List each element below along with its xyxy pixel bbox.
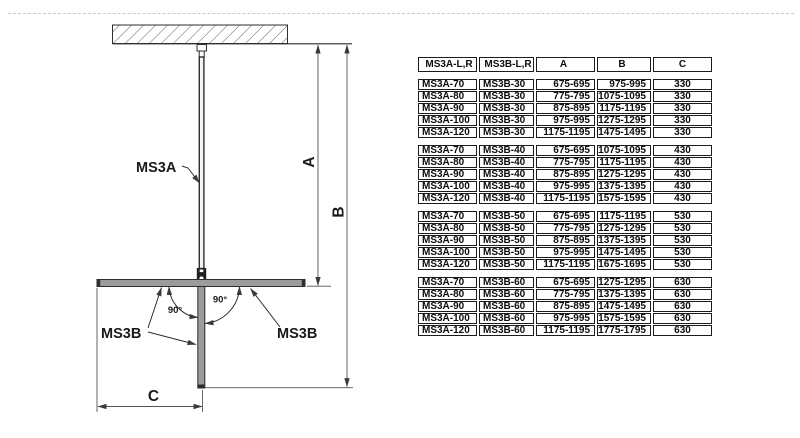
table-cell: MS3A-100 [418, 181, 477, 192]
angle-left-label: 90° [168, 305, 183, 316]
table-cell: 775-795 [536, 157, 595, 168]
table-cell: 1375-1395 [597, 235, 651, 246]
table-cell: 975-995 [536, 115, 595, 126]
table-cell: 875-895 [536, 301, 595, 312]
table-cell: 1175-1195 [536, 259, 595, 270]
table-cell: MS3A-90 [418, 103, 477, 114]
table-cell: 630 [653, 325, 712, 336]
table-cell: 1175-1195 [597, 211, 651, 222]
table-cell: 1275-1295 [597, 115, 651, 126]
table-cell: MS3B-50 [479, 247, 534, 258]
table-cell: MS3B-60 [479, 289, 534, 300]
table-cell: 1575-1595 [597, 193, 651, 204]
table-row: MS3A-70MS3B-40675-6951075-1095430 [418, 145, 712, 156]
table-cell: 1275-1295 [597, 169, 651, 180]
table-cell: 875-895 [536, 235, 595, 246]
table-cell: 675-695 [536, 211, 595, 222]
table-cell: 1175-1195 [536, 127, 595, 138]
table-cell: 975-995 [536, 313, 595, 324]
table-row: MS3A-90MS3B-60875-8951475-1495630 [418, 301, 712, 312]
table-cell: 1175-1195 [536, 325, 595, 336]
table-row: MS3A-90MS3B-50875-8951375-1395530 [418, 235, 712, 246]
column-header: MS3B-L,R [479, 57, 534, 72]
support-pole [199, 57, 204, 269]
table-group-2: MS3A-70MS3B-40675-6951075-1095430MS3A-80… [418, 145, 712, 204]
table-cell: MS3A-120 [418, 193, 477, 204]
table-cell: 775-795 [536, 91, 595, 102]
table-row: MS3A-120MS3B-501175-11951675-1695530 [418, 259, 712, 270]
table-cell: 1475-1495 [597, 127, 651, 138]
table-cell: 630 [653, 289, 712, 300]
table-cell: 1375-1395 [597, 289, 651, 300]
table-cell: 875-895 [536, 103, 595, 114]
table-cell: MS3B-60 [479, 313, 534, 324]
table-cell: MS3B-30 [479, 79, 534, 90]
table-cell: MS3A-100 [418, 247, 477, 258]
table-cell: 530 [653, 235, 712, 246]
table-cell: MS3A-90 [418, 301, 477, 312]
table-header-row: MS3A-L,RMS3B-L,RABC [418, 57, 712, 72]
table-cell: MS3B-40 [479, 193, 534, 204]
table-cell: MS3B-50 [479, 259, 534, 270]
panel-bar-vertical [198, 287, 205, 389]
table-row: MS3A-100MS3B-50975-9951475-1495530 [418, 247, 712, 258]
table-cell: 530 [653, 211, 712, 222]
table-cell: 1175-1195 [597, 157, 651, 168]
dim-b-label: B [331, 206, 348, 217]
table-cell: MS3B-30 [479, 91, 534, 102]
dim-c-label: C [148, 388, 159, 405]
table-cell: 875-895 [536, 169, 595, 180]
table-cell: 1575-1595 [597, 313, 651, 324]
table-cell: 1075-1095 [597, 145, 651, 156]
panel-label-ms3a: MS3A [136, 160, 177, 176]
table-row: MS3A-90MS3B-40875-8951275-1295430 [418, 169, 712, 180]
table-cell: MS3A-80 [418, 157, 477, 168]
table-row: MS3A-70MS3B-60675-6951275-1295630 [418, 277, 712, 288]
table-row: MS3A-80MS3B-40775-7951175-1195430 [418, 157, 712, 168]
table-row: MS3A-80MS3B-30775-7951075-1095330 [418, 91, 712, 102]
table-row: MS3A-80MS3B-50775-7951275-1295530 [418, 223, 712, 234]
table-row: MS3A-70MS3B-30675-695975-995330 [418, 79, 712, 90]
table-cell: MS3B-60 [479, 277, 534, 288]
table-cell: 775-795 [536, 223, 595, 234]
table-cell: 1475-1495 [597, 247, 651, 258]
table-cell: 1175-1195 [597, 103, 651, 114]
table-cell: 330 [653, 79, 712, 90]
table-group-3: MS3A-70MS3B-50675-6951175-1195530MS3A-80… [418, 211, 712, 270]
table-row: MS3A-100MS3B-60975-9951575-1595630 [418, 313, 712, 324]
table-cell: MS3B-60 [479, 301, 534, 312]
table-cell: 675-695 [536, 79, 595, 90]
panel-bar-horizontal [97, 280, 305, 287]
table-cell: 630 [653, 301, 712, 312]
table-cell: MS3B-40 [479, 145, 534, 156]
table-cell: MS3B-30 [479, 103, 534, 114]
ceiling-hatch [113, 25, 353, 44]
table-cell: MS3B-50 [479, 223, 534, 234]
table-cell: 530 [653, 223, 712, 234]
table-cell: 1275-1295 [597, 223, 651, 234]
table-cell: 430 [653, 193, 712, 204]
table-cell: 330 [653, 115, 712, 126]
table-cell: MS3B-50 [479, 211, 534, 222]
table-cell: MS3A-100 [418, 313, 477, 324]
table-group-1: MS3A-70MS3B-30675-695975-995330MS3A-80MS… [418, 79, 712, 138]
table-group-4: MS3A-70MS3B-60675-6951275-1295630MS3A-80… [418, 277, 712, 336]
column-header: A [536, 57, 595, 72]
table-cell: MS3A-70 [418, 145, 477, 156]
table-cell: MS3A-80 [418, 91, 477, 102]
table-cell: 1675-1695 [597, 259, 651, 270]
column-header: MS3A-L,R [418, 57, 477, 72]
table-cell: 1275-1295 [597, 277, 651, 288]
column-header: B [597, 57, 651, 72]
table-cell: 430 [653, 181, 712, 192]
table-cell: MS3A-100 [418, 115, 477, 126]
table-cell: 1175-1195 [536, 193, 595, 204]
table-cell: MS3B-50 [479, 235, 534, 246]
table-cell: 430 [653, 145, 712, 156]
table-cell: MS3A-80 [418, 223, 477, 234]
table-cell: 430 [653, 157, 712, 168]
table-cell: 775-795 [536, 289, 595, 300]
table-cell: 630 [653, 313, 712, 324]
table-cell: MS3A-120 [418, 259, 477, 270]
table-cell: 1475-1495 [597, 301, 651, 312]
table-row: MS3A-70MS3B-50675-6951175-1195530 [418, 211, 712, 222]
table-cell: MS3A-70 [418, 79, 477, 90]
dim-a-label: A [301, 156, 318, 167]
table-cell: MS3A-90 [418, 169, 477, 180]
table-cell: MS3A-90 [418, 235, 477, 246]
table-cell: 330 [653, 127, 712, 138]
table-cell: 530 [653, 259, 712, 270]
installation-diagram: A B C 90° 90° MS3A MS3B MS3B [0, 0, 420, 438]
table-cell: MS3A-120 [418, 325, 477, 336]
table-cell: 975-995 [597, 79, 651, 90]
table-cell: 530 [653, 247, 712, 258]
table-cell: 330 [653, 91, 712, 102]
panel-label-ms3b-left: MS3B [101, 326, 141, 342]
table-cell: MS3B-60 [479, 325, 534, 336]
column-header: C [653, 57, 712, 72]
table-cell: MS3A-70 [418, 277, 477, 288]
table-cell: 1075-1095 [597, 91, 651, 102]
table-row: MS3A-90MS3B-30875-8951175-1195330 [418, 103, 712, 114]
leader-lines [148, 166, 280, 345]
table-row: MS3A-120MS3B-301175-11951475-1495330 [418, 127, 712, 138]
table-row: MS3A-120MS3B-601175-11951775-1795630 [418, 325, 712, 336]
table-cell: 630 [653, 277, 712, 288]
table-row: MS3A-80MS3B-60775-7951375-1395630 [418, 289, 712, 300]
angle-right-label: 90° [213, 295, 228, 306]
table-cell: MS3B-40 [479, 157, 534, 168]
table-cell: MS3B-40 [479, 169, 534, 180]
spec-table: MS3A-L,RMS3B-L,RABCMS3A-70MS3B-30675-695… [418, 57, 712, 336]
table-cell: 1375-1395 [597, 181, 651, 192]
table-cell: 330 [653, 103, 712, 114]
table-cell: MS3B-40 [479, 181, 534, 192]
table-cell: MS3A-80 [418, 289, 477, 300]
table-row: MS3A-100MS3B-40975-9951375-1395430 [418, 181, 712, 192]
table-cell: 1775-1795 [597, 325, 651, 336]
table-cell: MS3B-30 [479, 127, 534, 138]
table-cell: 675-695 [536, 277, 595, 288]
table-cell: 975-995 [536, 247, 595, 258]
table-cell: MS3A-70 [418, 211, 477, 222]
table-cell: MS3B-30 [479, 115, 534, 126]
table-cell: 675-695 [536, 145, 595, 156]
ceiling-bracket [197, 45, 207, 58]
table-row: MS3A-120MS3B-401175-11951575-1595430 [418, 193, 712, 204]
table-cell: 430 [653, 169, 712, 180]
table-cell: MS3A-120 [418, 127, 477, 138]
table-cell: 975-995 [536, 181, 595, 192]
table-row: MS3A-100MS3B-30975-9951275-1295330 [418, 115, 712, 126]
panel-label-ms3b-right: MS3B [277, 326, 317, 342]
